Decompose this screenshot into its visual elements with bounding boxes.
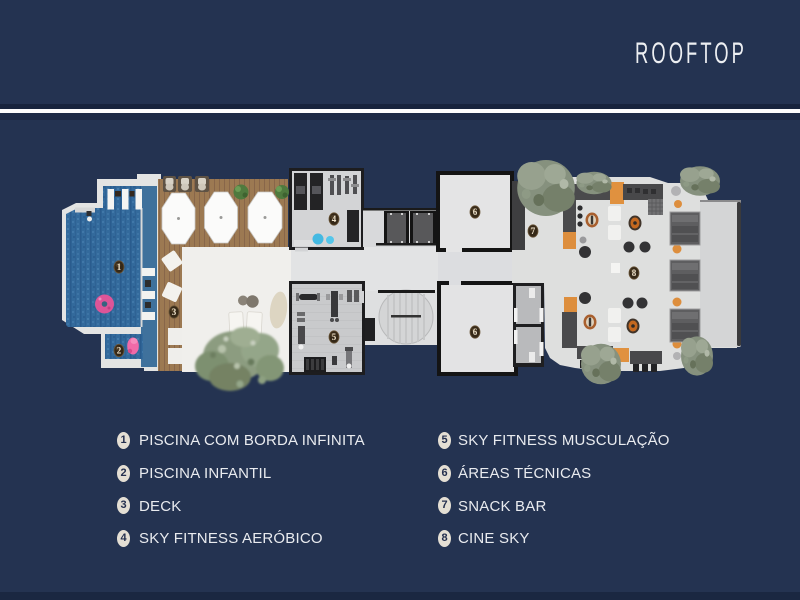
svg-text:2: 2 xyxy=(117,346,122,356)
svg-text:3: 3 xyxy=(172,307,177,317)
svg-text:1: 1 xyxy=(117,262,122,272)
svg-text:4: 4 xyxy=(332,214,337,224)
svg-text:7: 7 xyxy=(531,226,536,236)
svg-text:6: 6 xyxy=(473,327,478,337)
svg-text:5: 5 xyxy=(332,332,337,342)
svg-text:8: 8 xyxy=(632,268,637,278)
svg-text:6: 6 xyxy=(473,207,478,217)
